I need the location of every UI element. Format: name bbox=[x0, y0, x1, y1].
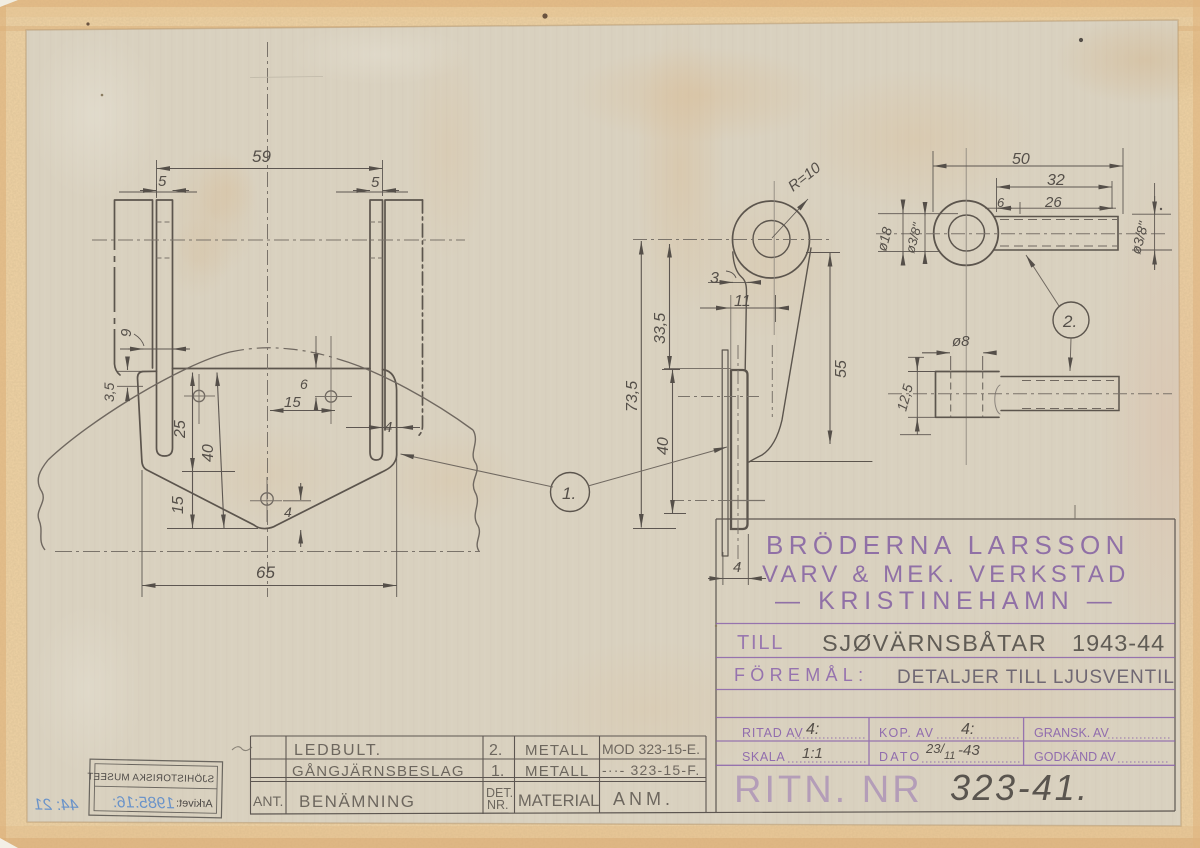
svg-text:26: 26 bbox=[1044, 194, 1062, 211]
svg-text:50: 50 bbox=[1012, 151, 1030, 168]
svg-text:33,5: 33,5 bbox=[652, 313, 669, 344]
svg-text:3,5: 3,5 bbox=[101, 382, 117, 402]
svg-text:44: 21: 44: 21 bbox=[34, 796, 79, 814]
svg-text:DATO: DATO bbox=[879, 750, 921, 764]
svg-text:FÖREMÅL:: FÖREMÅL: bbox=[734, 665, 868, 685]
svg-text:25: 25 bbox=[172, 420, 189, 439]
svg-text:TILL: TILL bbox=[737, 632, 784, 654]
svg-text:4: 4 bbox=[284, 504, 292, 520]
svg-text:GODKÄND AV: GODKÄND AV bbox=[1034, 750, 1116, 764]
svg-text:40: 40 bbox=[655, 437, 672, 455]
svg-text:ANM.: ANM. bbox=[613, 789, 674, 809]
svg-text:METALL: METALL bbox=[525, 742, 589, 759]
svg-text:METALL: METALL bbox=[525, 763, 589, 780]
svg-text:-43: -43 bbox=[958, 742, 980, 759]
svg-text:DETALJER TILL LJUSVENTIL: DETALJER TILL LJUSVENTIL bbox=[897, 667, 1175, 688]
svg-text:BRÖDERNA LARSSON: BRÖDERNA LARSSON bbox=[766, 530, 1130, 560]
svg-text:4: 4 bbox=[384, 419, 392, 436]
svg-text:RITAD AV: RITAD AV bbox=[742, 726, 804, 740]
svg-text:ø8: ø8 bbox=[952, 333, 970, 350]
svg-text:32: 32 bbox=[1047, 172, 1065, 189]
svg-text:NR.: NR. bbox=[487, 798, 509, 812]
svg-text:LEDBULT.: LEDBULT. bbox=[294, 742, 382, 759]
svg-text:RITN. NR: RITN. NR bbox=[734, 769, 923, 811]
svg-text:5: 5 bbox=[371, 174, 380, 191]
svg-text:73,5: 73,5 bbox=[624, 381, 641, 412]
svg-text:11: 11 bbox=[734, 293, 751, 310]
svg-text:15: 15 bbox=[284, 394, 301, 411]
svg-text:9: 9 bbox=[118, 328, 135, 337]
svg-text:40: 40 bbox=[200, 444, 217, 462]
svg-text:MOD 323-15-E.: MOD 323-15-E. bbox=[602, 741, 700, 757]
svg-text:5: 5 bbox=[158, 173, 167, 190]
svg-text:Arkivet:: Arkivet: bbox=[176, 797, 213, 810]
svg-text:65: 65 bbox=[256, 563, 275, 582]
svg-text:1985:16:: 1985:16: bbox=[112, 794, 175, 812]
svg-text:2.: 2. bbox=[1062, 312, 1077, 331]
svg-text:2.: 2. bbox=[489, 742, 502, 759]
svg-text:11: 11 bbox=[944, 750, 955, 762]
svg-text:15: 15 bbox=[170, 496, 187, 514]
svg-text:SJØVÄRNSBÅTAR: SJØVÄRNSBÅTAR bbox=[822, 629, 1047, 656]
svg-text:1943-44: 1943-44 bbox=[1072, 630, 1165, 656]
svg-text:59: 59 bbox=[252, 147, 271, 166]
svg-text:6: 6 bbox=[300, 376, 308, 392]
svg-text:55: 55 bbox=[833, 360, 850, 378]
svg-text:3: 3 bbox=[710, 270, 719, 287]
svg-text:-··- 323-15-F.: -··- 323-15-F. bbox=[602, 762, 700, 778]
svg-text:23/: 23/ bbox=[925, 741, 945, 756]
svg-text:GÅNGJÄRNSBESLAG: GÅNGJÄRNSBESLAG bbox=[292, 763, 465, 780]
svg-text:MATERIAL: MATERIAL bbox=[518, 792, 599, 810]
svg-text:KOP. AV: KOP. AV bbox=[879, 726, 934, 740]
svg-text:SKALA: SKALA bbox=[742, 750, 785, 764]
svg-text:4: 4 bbox=[733, 559, 741, 576]
svg-text:4:: 4: bbox=[961, 721, 974, 738]
svg-text:6: 6 bbox=[997, 195, 1005, 210]
svg-text:1.: 1. bbox=[491, 763, 504, 780]
svg-text:VARV & MEK. VERKSTAD: VARV & MEK. VERKSTAD bbox=[762, 561, 1129, 588]
svg-text:4:: 4: bbox=[806, 721, 819, 738]
svg-text:GRANSK. AV: GRANSK. AV bbox=[1034, 726, 1109, 740]
svg-text:1.: 1. bbox=[562, 484, 576, 503]
svg-text:ANT.: ANT. bbox=[253, 793, 283, 809]
svg-text:— KRISTINEHAMN —: — KRISTINEHAMN — bbox=[775, 587, 1117, 615]
svg-text:323-41.: 323-41. bbox=[950, 767, 1090, 808]
svg-text:BENÄMNING: BENÄMNING bbox=[299, 792, 415, 811]
svg-text:1:1: 1:1 bbox=[802, 745, 823, 762]
